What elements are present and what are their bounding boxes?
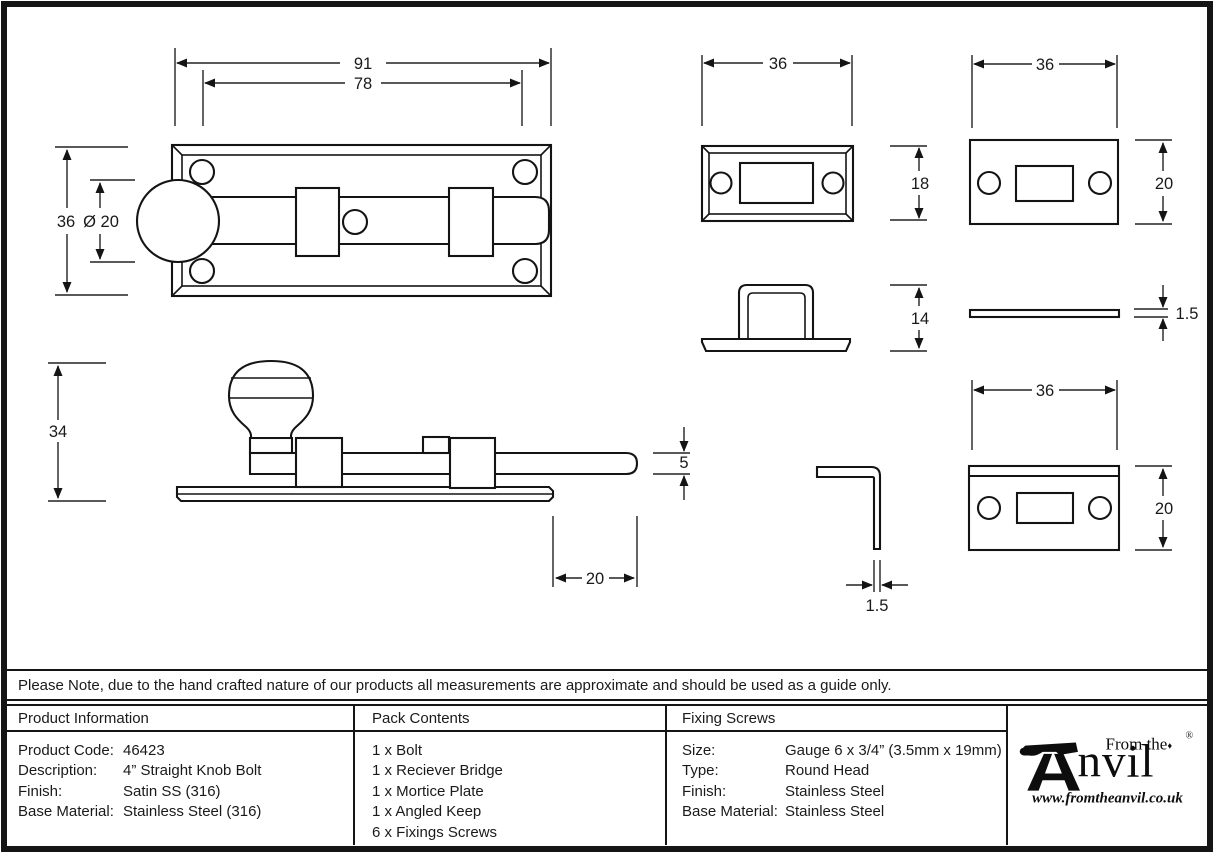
mortice-front-drawing: 36 20 (970, 55, 1173, 224)
dim-side-throw: 20 (586, 570, 604, 588)
bridge-side-drawing: 14 (702, 285, 929, 351)
row-label: Type: (682, 762, 785, 779)
table-row: Product Code: 46423 (18, 740, 353, 761)
table-row: Base Material: Stainless Steel (316) (18, 802, 353, 823)
technical-drawing-area: 91 78 36 Ø 20 (0, 0, 1214, 669)
table-row: Finish: Satin SS (316) (18, 781, 353, 802)
dim-mortice-height: 20 (1155, 175, 1173, 193)
list-item: 6 x Fixings Screws (372, 822, 665, 843)
side-view-drawing: 34 5 20 (48, 361, 690, 588)
list-item: 1 x Angled Keep (372, 802, 665, 823)
table-row: Description: 4” Straight Knob Bolt (18, 761, 353, 782)
row-value: Stainless Steel (785, 803, 884, 820)
info-table: Product Information Product Code: 46423 … (7, 704, 1207, 845)
row-label: Description: (18, 762, 123, 779)
dim-keep-front-height: 20 (1155, 500, 1173, 518)
dim-bridge-height: 18 (911, 175, 929, 193)
dim-plan-height: 36 (57, 213, 75, 231)
fixing-screws-column: Fixing Screws Size: Gauge 6 x 3/4” (3.5m… (665, 706, 1006, 845)
keep-side-drawing: 1.5 (817, 467, 908, 615)
note-text: Please Note, due to the hand crafted nat… (18, 677, 892, 694)
plan-view-drawing: 91 78 36 Ø 20 (55, 48, 551, 296)
bolt-pin (343, 210, 367, 234)
row-value: Gauge 6 x 3/4” (3.5mm x 19mm) (785, 742, 1002, 759)
brand-url: www.fromtheanvil.co.uk (1020, 790, 1196, 807)
row-value: 46423 (123, 742, 165, 759)
brand-column: From the ♦ ® nvil www.fromtheanvil.co.uk (1006, 706, 1207, 845)
brand-name: nvil (1078, 738, 1155, 785)
table-row: Finish: Stainless Steel (682, 781, 1006, 802)
pack-contents-column: Pack Contents 1 x Bolt 1 x Reciever Brid… (353, 706, 665, 845)
row-value: 4” Straight Knob Bolt (123, 762, 261, 779)
dim-plan-inner: 78 (354, 75, 372, 93)
dim-side-rod: 5 (679, 454, 688, 472)
dim-bridge-side-height: 14 (911, 310, 929, 328)
dim-bridge-width: 36 (769, 55, 787, 73)
row-value: Round Head (785, 762, 869, 779)
row-value: Stainless Steel (316) (123, 803, 261, 820)
note-bar: Please Note, due to the hand crafted nat… (7, 669, 1207, 701)
technical-drawing: 91 78 36 Ø 20 (0, 0, 1214, 669)
mortice-side-drawing: 1.5 (970, 285, 1198, 341)
table-row: Type: Round Head (682, 761, 1006, 782)
knob-side (229, 361, 313, 438)
list-item: 1 x Mortice Plate (372, 781, 665, 802)
list-item: 1 x Bolt (372, 740, 665, 761)
dim-side-height: 34 (49, 423, 67, 441)
bridge-front-drawing: 36 18 (702, 55, 929, 221)
row-value: Satin SS (316) (123, 783, 221, 800)
product-information-header: Product Information (7, 706, 353, 732)
row-label: Base Material: (682, 803, 785, 820)
knob-plan (137, 180, 219, 262)
table-row: Base Material: Stainless Steel (682, 802, 1006, 823)
row-value: Stainless Steel (785, 783, 884, 800)
spec-sheet-page: 91 78 36 Ø 20 (0, 0, 1214, 853)
dim-mortice-side-thickness: 1.5 (1176, 305, 1199, 323)
keep-front-drawing: 36 20 (969, 380, 1173, 550)
dim-keep-front-width: 36 (1036, 382, 1054, 400)
row-label: Size: (682, 742, 785, 759)
diamond-icon: ♦ (1168, 740, 1173, 750)
dim-mortice-width: 36 (1036, 56, 1054, 74)
pack-contents-header: Pack Contents (355, 706, 665, 732)
row-label: Product Code: (18, 742, 123, 759)
fixing-screws-header: Fixing Screws (667, 706, 1006, 732)
anvil-icon (1018, 740, 1080, 797)
row-label: Base Material: (18, 803, 123, 820)
product-information-column: Product Information Product Code: 46423 … (7, 706, 353, 845)
from-the-anvil-logo: From the ♦ ® nvil www.fromtheanvil.co.uk (1020, 732, 1196, 816)
dim-plan-overall: 91 (354, 55, 372, 73)
table-row: Size: Gauge 6 x 3/4” (3.5mm x 19mm) (682, 740, 1006, 761)
dim-plan-knob-diameter: Ø 20 (83, 213, 119, 231)
row-label: Finish: (18, 783, 123, 800)
dim-keep-side-thickness: 1.5 (866, 597, 889, 615)
list-item: 1 x Reciever Bridge (372, 761, 665, 782)
row-label: Finish: (682, 783, 785, 800)
registered-trademark: ® (1186, 730, 1194, 741)
